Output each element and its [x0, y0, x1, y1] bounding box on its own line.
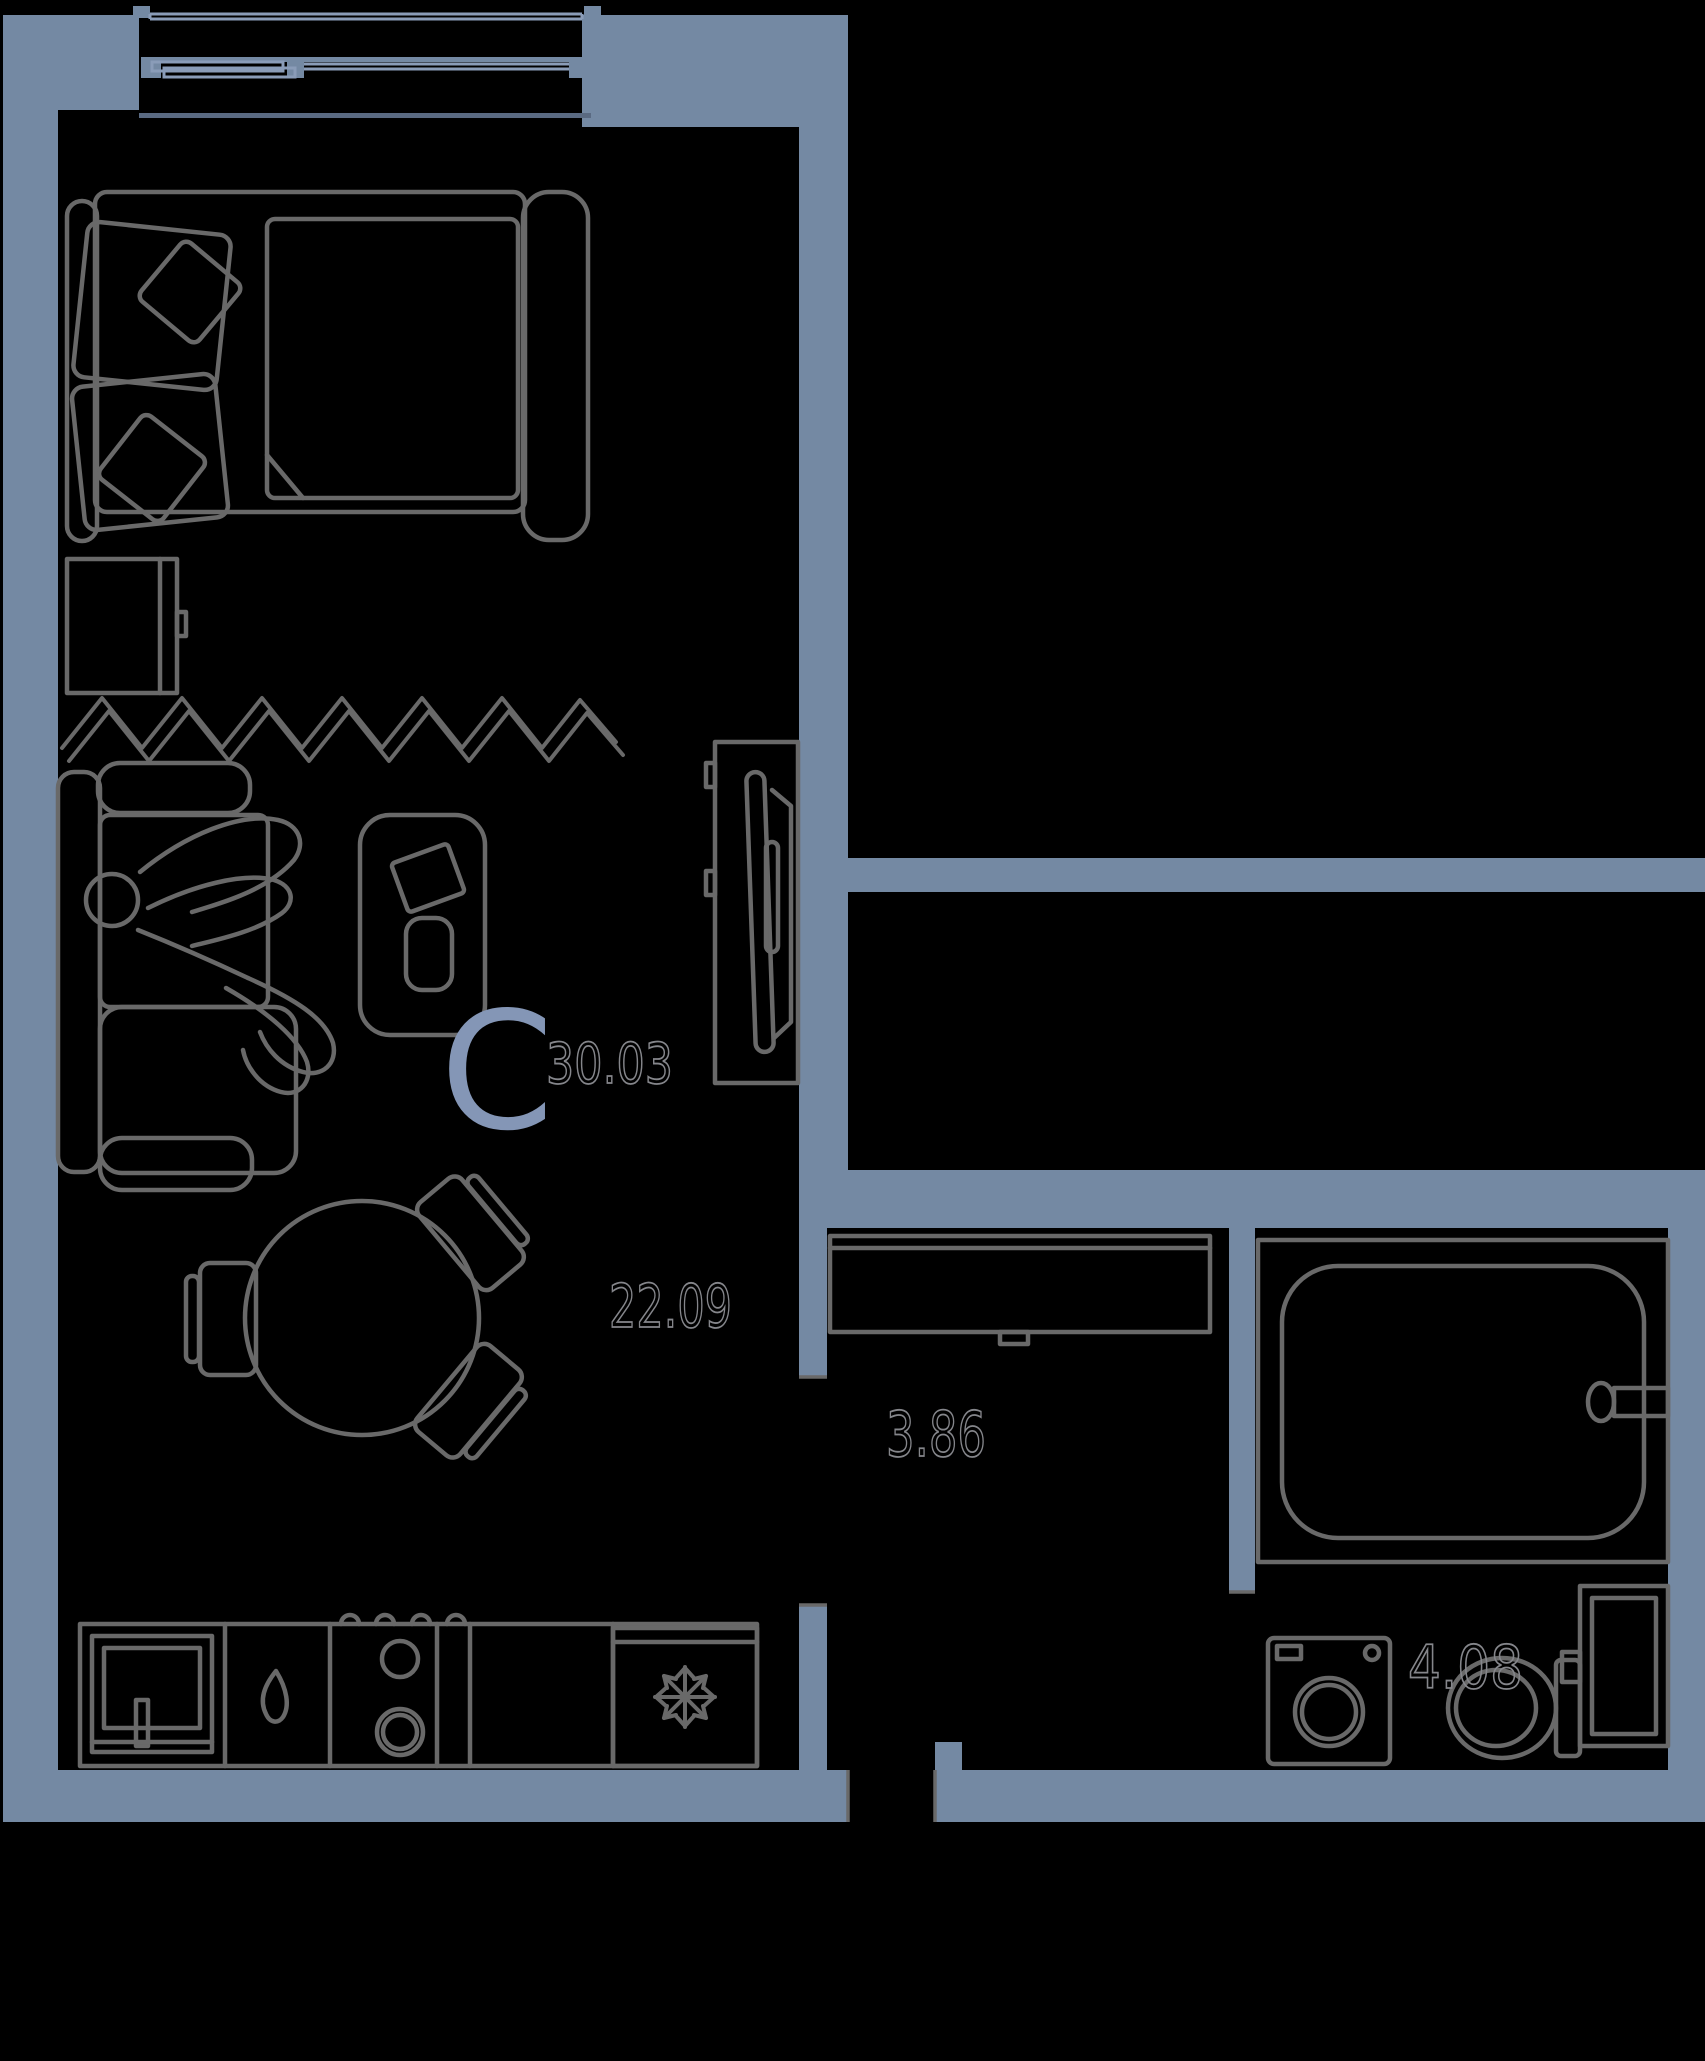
living-room-area-label: 22.09	[609, 1272, 732, 1342]
bathtub	[1258, 1240, 1668, 1562]
bathroom-area-label: 4.08	[1408, 1633, 1523, 1703]
floorplan-svg: С 30.03 22.09 3.86 4.08	[0, 0, 1705, 2061]
magazine	[391, 843, 465, 912]
bath-faucet	[1588, 1383, 1614, 1421]
unit-type-letter: С	[440, 978, 554, 1167]
fridge	[613, 1628, 757, 1766]
stove	[341, 1615, 465, 1755]
bed	[67, 192, 588, 541]
balcony-window-assembly	[141, 57, 586, 78]
chair	[413, 1163, 539, 1294]
tv-unit	[706, 742, 798, 1083]
hall-wardrobe	[830, 1236, 1210, 1344]
washing-machine	[1268, 1638, 1390, 1764]
walls	[3, 6, 1705, 1822]
total-area-label: 30.03	[546, 1032, 673, 1097]
tv-screen	[746, 772, 774, 1052]
floorplan-page: С 30.03 22.09 3.86 4.08	[0, 0, 1705, 2061]
snowflake-icon	[655, 1667, 715, 1727]
kitchen-counter	[80, 1615, 757, 1766]
nightstand	[67, 559, 186, 693]
wall-opening-caps	[799, 1377, 1255, 1822]
sofa	[58, 763, 296, 1190]
dining-table	[186, 1163, 539, 1470]
kitchen-sink	[92, 1636, 212, 1752]
faucet-drop-icon	[263, 1671, 287, 1722]
closet-zigzag	[62, 698, 623, 761]
pillow-fold	[96, 412, 208, 524]
balcony-glazing	[150, 14, 582, 19]
hallway-area-label: 3.86	[886, 1398, 986, 1471]
chair	[411, 1340, 537, 1471]
